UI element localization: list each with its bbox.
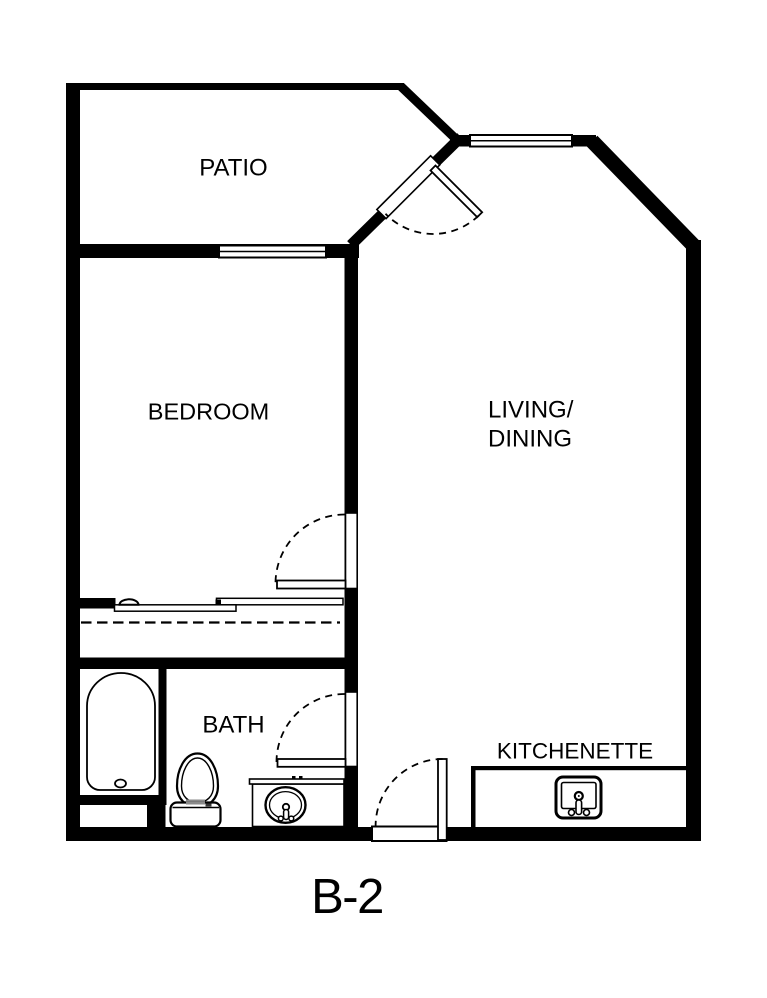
svg-text:LIVING/: LIVING/ <box>488 397 574 424</box>
svg-text:DINING: DINING <box>488 425 572 452</box>
svg-text:PATIO: PATIO <box>199 155 267 182</box>
svg-text:KITCHENETTE: KITCHENETTE <box>497 739 653 764</box>
svg-text:BATH: BATH <box>202 712 264 739</box>
svg-text:B-2: B-2 <box>311 870 383 924</box>
svg-text:BEDROOM: BEDROOM <box>148 399 269 425</box>
